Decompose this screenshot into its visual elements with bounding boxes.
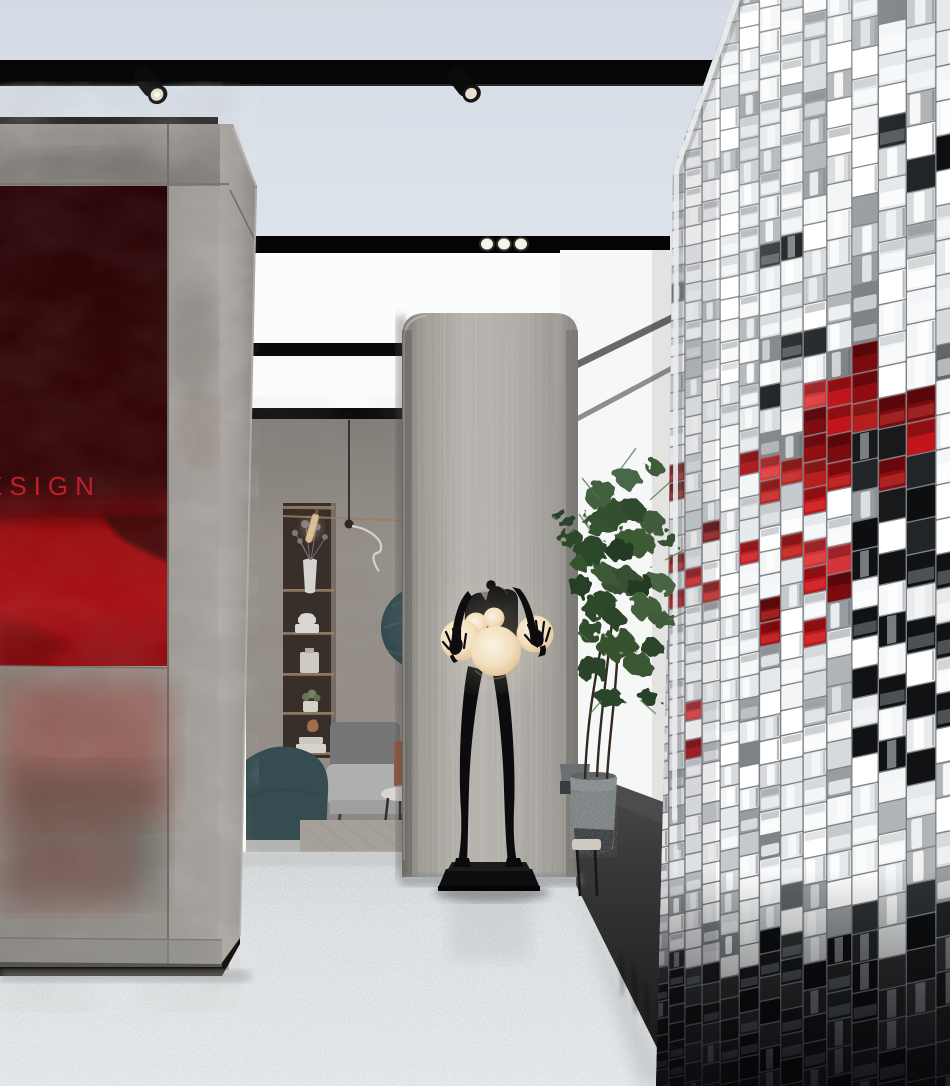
svg-text:ESIGN: ESIGN — [0, 471, 101, 501]
